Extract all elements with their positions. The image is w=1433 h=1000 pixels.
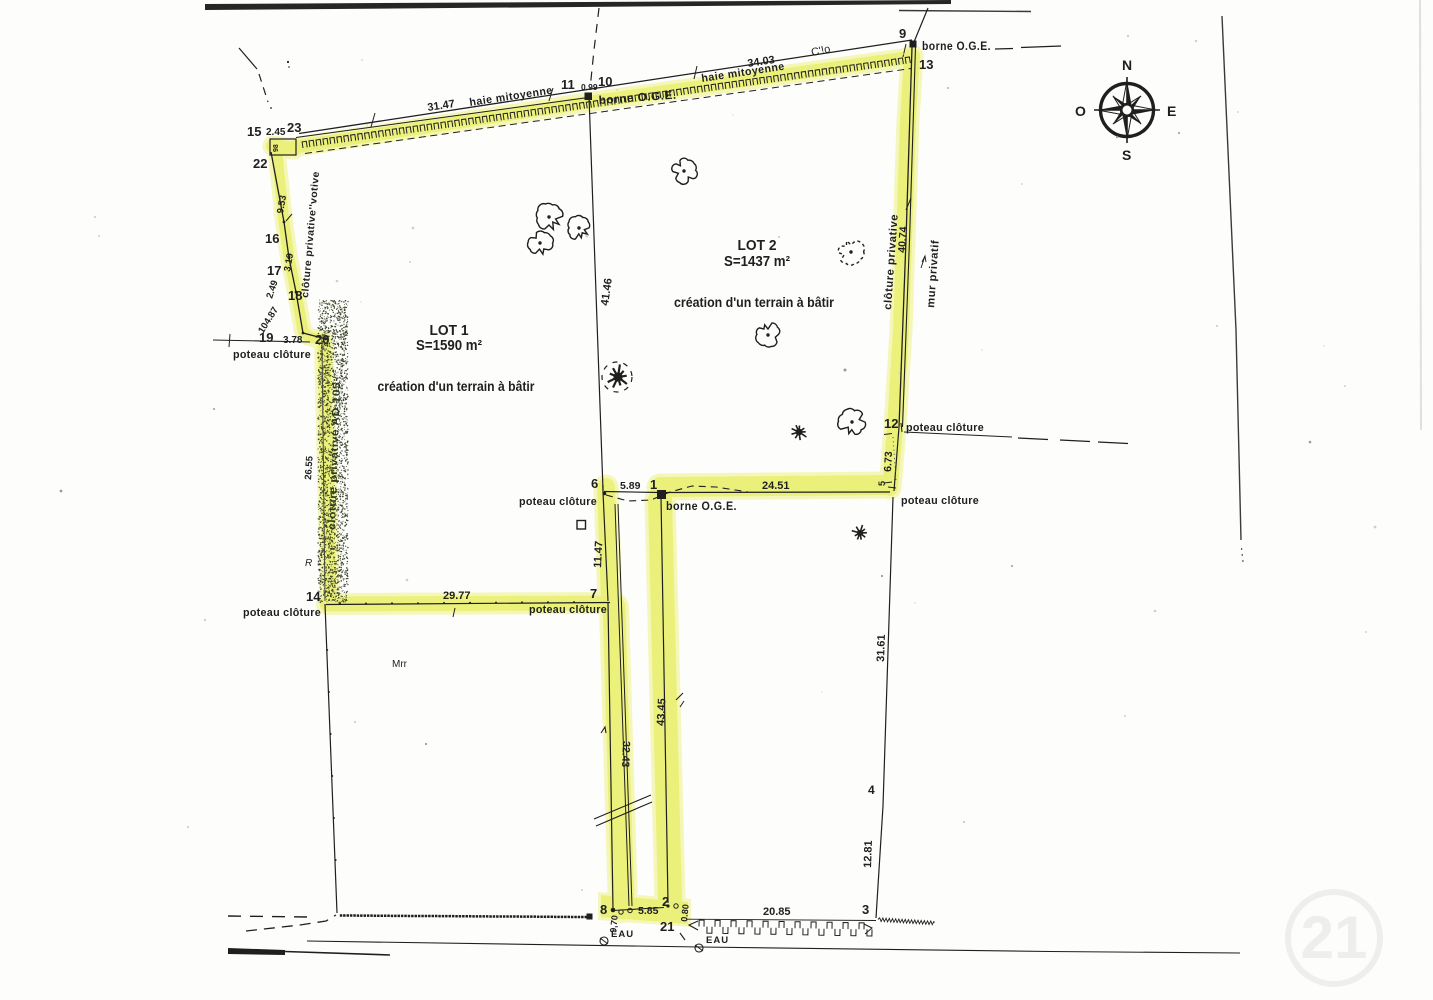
svg-text:3: 3 bbox=[862, 902, 869, 917]
svg-text:E: E bbox=[1167, 103, 1176, 119]
svg-text:24.51: 24.51 bbox=[762, 480, 790, 492]
svg-text:98: 98 bbox=[273, 144, 280, 152]
svg-text:5: 5 bbox=[877, 481, 887, 486]
svg-text:6.73: 6.73 bbox=[882, 451, 895, 472]
svg-text:EAU: EAU bbox=[706, 935, 729, 946]
svg-text:14: 14 bbox=[306, 589, 321, 604]
svg-text:29.77: 29.77 bbox=[443, 590, 471, 602]
svg-text:6: 6 bbox=[591, 476, 598, 491]
svg-text:3.78: 3.78 bbox=[283, 335, 303, 346]
svg-text:1: 1 bbox=[650, 477, 657, 492]
svg-text:5.85: 5.85 bbox=[638, 905, 659, 917]
svg-text:poteau clôture: poteau clôture bbox=[906, 422, 984, 434]
svg-text:32.43: 32.43 bbox=[619, 741, 632, 768]
svg-text:création d'un terrain à bâtir: création d'un terrain à bâtir bbox=[378, 379, 536, 394]
svg-text:5.89: 5.89 bbox=[620, 480, 641, 492]
svg-text:9: 9 bbox=[899, 26, 906, 41]
svg-text:8: 8 bbox=[600, 902, 607, 917]
svg-text:22: 22 bbox=[253, 156, 267, 171]
svg-text:poteau clôture: poteau clôture bbox=[529, 604, 607, 616]
svg-text:23: 23 bbox=[287, 120, 301, 135]
svg-text:LOT 1: LOT 1 bbox=[430, 323, 469, 339]
svg-text:0.99: 0.99 bbox=[581, 82, 598, 92]
svg-text:11.47: 11.47 bbox=[592, 541, 605, 569]
svg-text:poteau clôture: poteau clôture bbox=[243, 607, 321, 619]
svg-text:2.45: 2.45 bbox=[266, 127, 286, 138]
svg-text:poteau clôture: poteau clôture bbox=[233, 349, 311, 361]
svg-text:R: R bbox=[305, 558, 312, 569]
svg-text:17: 17 bbox=[267, 263, 281, 278]
svg-text:LOT 2: LOT 2 bbox=[738, 238, 777, 254]
svg-text:O: O bbox=[1075, 103, 1086, 119]
svg-text:16: 16 bbox=[265, 231, 279, 246]
svg-text:15: 15 bbox=[247, 124, 261, 139]
svg-text:7: 7 bbox=[590, 586, 597, 601]
svg-text:S: S bbox=[1122, 147, 1131, 163]
svg-text:borne O.G.E.: borne O.G.E. bbox=[922, 41, 991, 53]
svg-text:S=1437 m²: S=1437 m² bbox=[724, 254, 790, 270]
svg-text:40.74: 40.74 bbox=[896, 226, 910, 253]
svg-text:43.45: 43.45 bbox=[655, 698, 668, 726]
svg-text:poteau clôture: poteau clôture bbox=[519, 496, 597, 508]
svg-text:création d'un terrain à bâtir: création d'un terrain à bâtir bbox=[674, 295, 835, 310]
svg-text:Mrr: Mrr bbox=[392, 659, 408, 670]
svg-text:13: 13 bbox=[919, 57, 933, 72]
svg-text:21: 21 bbox=[1301, 904, 1368, 971]
svg-text:poteau clôture: poteau clôture bbox=[901, 495, 979, 507]
svg-text:26.55: 26.55 bbox=[303, 455, 316, 480]
svg-text:11: 11 bbox=[561, 77, 575, 92]
svg-text:18: 18 bbox=[288, 288, 302, 303]
svg-text:EAU: EAU bbox=[611, 929, 634, 940]
svg-text:S=1590 m²: S=1590 m² bbox=[416, 338, 482, 354]
svg-text:31.61: 31.61 bbox=[875, 634, 888, 662]
svg-text:12.81: 12.81 bbox=[862, 840, 875, 868]
svg-text:N: N bbox=[1122, 57, 1132, 73]
svg-text:borne O.G.E.: borne O.G.E. bbox=[666, 501, 737, 513]
svg-text:4: 4 bbox=[868, 783, 875, 797]
svg-text:21: 21 bbox=[660, 919, 674, 934]
svg-text:12: 12 bbox=[884, 416, 898, 431]
svg-text:10: 10 bbox=[598, 74, 612, 89]
svg-text:19: 19 bbox=[259, 330, 273, 345]
svg-text:20.85: 20.85 bbox=[763, 906, 791, 918]
